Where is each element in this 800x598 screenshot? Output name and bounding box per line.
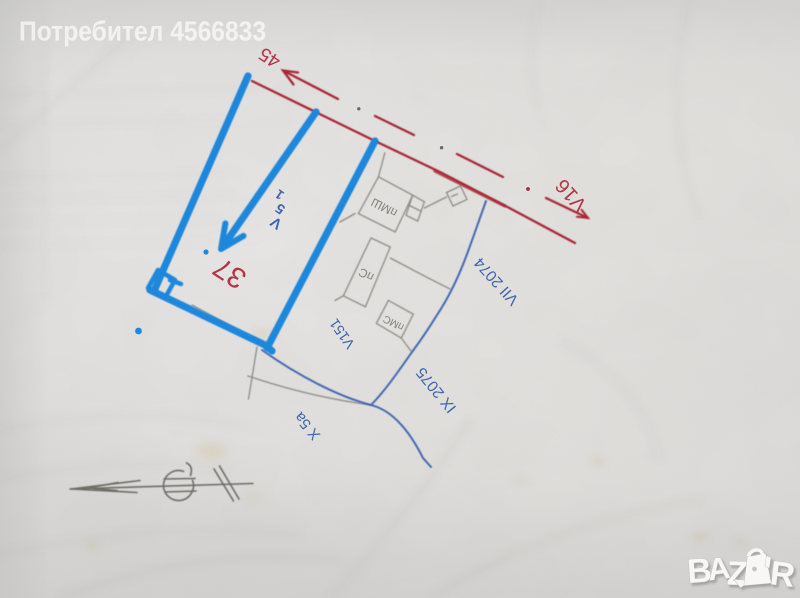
svg-text:R: R <box>768 554 797 595</box>
svg-text:Z: Z <box>726 555 748 594</box>
svg-text:Потребител 4566833: Потребител 4566833 <box>19 15 266 47</box>
